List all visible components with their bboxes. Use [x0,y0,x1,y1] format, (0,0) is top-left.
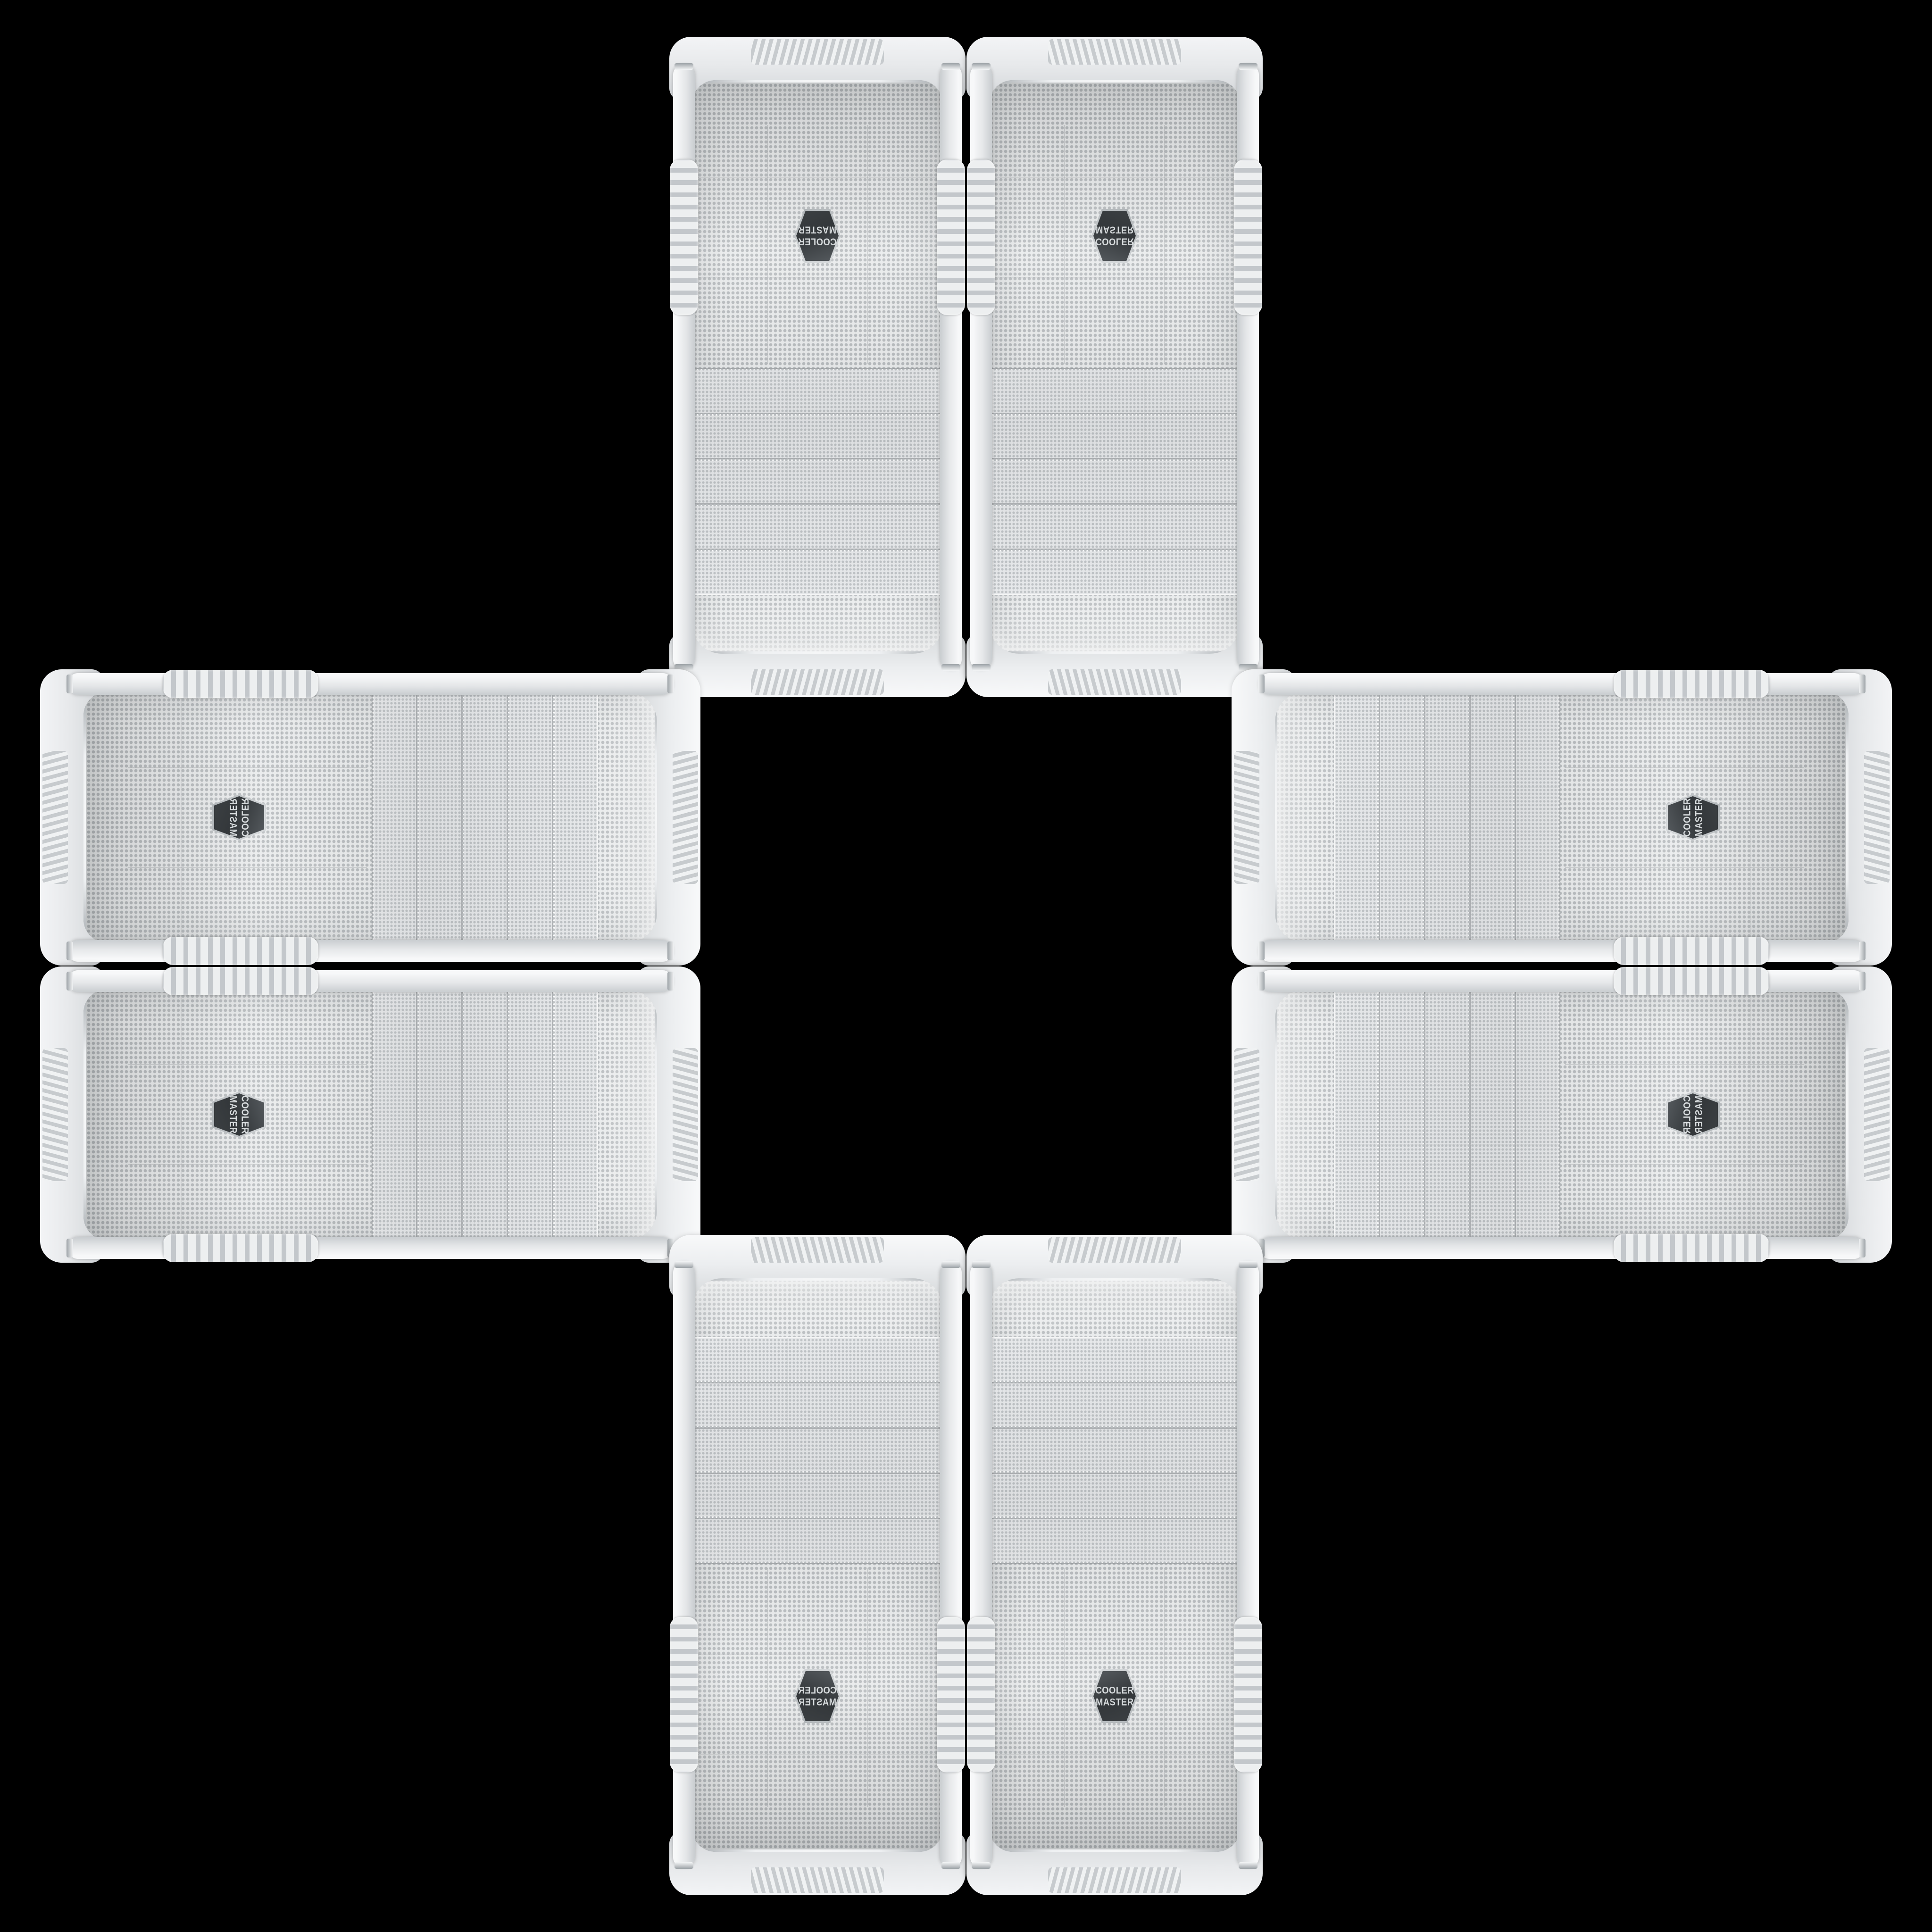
badge-brand-line1: COOLER [1682,1095,1693,1133]
drive-bay-strips [372,989,598,1240]
badge-brand-line2: MASTER [1693,799,1705,836]
chrome-trim [991,80,1238,83]
chrome-trim [83,991,86,1238]
badge-brand-line2: MASTER [799,1697,836,1708]
pc-case-top-left: COOLER MASTER [676,37,959,697]
drive-bay-strips [372,692,598,943]
side-rail [68,673,672,695]
foot-grip-ribs [751,39,884,65]
side-rail [673,1263,695,1867]
rail-grip-ribs [937,159,965,315]
cap-grip-ribs [751,1237,884,1263]
badge-brand-line1: COOLER [798,1685,836,1696]
pc-case-right-bottom: COOLER MASTER [1232,973,1892,1256]
chrome-trim [83,694,86,941]
badge-brand-line1: COOLER [1095,236,1133,248]
side-rail [940,65,962,669]
badge-brand-line1: COOLER [240,798,251,836]
badge-brand-line2: MASTER [1096,225,1133,236]
drive-bay-strips [1334,692,1560,943]
case-montage-scene: COOLER MASTER COOLER MASTER [0,0,1932,1932]
cap-grip-ribs [1234,751,1259,884]
foot-grip-ribs [42,1048,68,1181]
front-mesh-panel: COOLER MASTER [1275,692,1849,943]
drive-bay-strips [989,1337,1240,1564]
pc-case-top-right: COOLER MASTER [973,37,1256,697]
pc-case-right-top: COOLER MASTER [1232,676,1892,959]
badge-brand-line2: MASTER [228,1096,239,1133]
badge-brand-line1: COOLER [1682,798,1693,836]
chrome-trim [694,1278,941,1281]
foot-grip-ribs [1048,1867,1181,1893]
front-mesh-panel: COOLER MASTER [692,80,943,654]
chrome-trim [694,1849,941,1852]
drive-bay-strips [1334,989,1560,1240]
rail-grip-ribs [670,159,698,315]
front-mesh-panel: COOLER MASTER [989,80,1240,654]
side-rail [1260,673,1864,695]
chrome-trim [991,651,1238,654]
cap-grip-ribs [751,669,884,695]
drive-bay-strips [692,368,943,595]
front-mesh-panel: COOLER MASTER [1275,989,1849,1240]
chrome-trim [694,651,941,654]
badge-brand-line2: MASTER [228,799,239,836]
rail-grip-ribs [967,1617,995,1773]
rail-grip-ribs [163,1234,318,1262]
badge-brand-line1: COOLER [240,1095,251,1133]
cap-grip-ribs [1234,1048,1259,1181]
chrome-trim [991,1278,1238,1281]
chrome-trim [655,991,657,1238]
rail-grip-ribs [163,670,318,698]
drive-bay-strips [692,1337,943,1564]
drive-bay-strips [989,368,1240,595]
side-rail [970,1263,992,1867]
side-rail [1260,940,1864,962]
chrome-trim [694,80,941,83]
chrome-trim [655,694,657,941]
chrome-trim [1275,991,1277,1238]
rail-grip-ribs [1614,967,1769,995]
side-rail [1260,970,1864,992]
front-mesh-panel: COOLER MASTER [692,1278,943,1852]
pc-case-bottom-right: COOLER MASTER [973,1235,1256,1895]
rail-grip-ribs [937,1617,965,1773]
badge-brand-line2: MASTER [799,225,836,236]
side-rail [1237,65,1259,669]
pc-case-left-top: COOLER MASTER [40,676,700,959]
rail-grip-ribs [1614,1234,1769,1262]
rail-grip-ribs [163,937,318,965]
rail-grip-ribs [1614,670,1769,698]
side-rail [940,1263,962,1867]
cap-grip-ribs [1048,669,1181,695]
cap-grip-ribs [673,751,698,884]
side-rail [68,970,672,992]
side-rail [673,65,695,669]
side-rail [68,1237,672,1259]
foot-grip-ribs [1048,39,1181,65]
chrome-trim [1275,694,1277,941]
pc-case-left-bottom: COOLER MASTER [40,973,700,1256]
chrome-trim [1846,991,1849,1238]
cap-grip-ribs [673,1048,698,1181]
side-rail [1237,1263,1259,1867]
badge-brand-line1: COOLER [798,236,836,248]
front-mesh-panel: COOLER MASTER [989,1278,1240,1852]
rail-grip-ribs [1614,937,1769,965]
foot-grip-ribs [42,751,68,884]
chrome-trim [991,1849,1238,1852]
chrome-trim [1846,694,1849,941]
side-rail [1260,1237,1864,1259]
rail-grip-ribs [163,967,318,995]
front-mesh-panel: COOLER MASTER [83,692,657,943]
foot-grip-ribs [751,1867,884,1893]
front-mesh-panel: COOLER MASTER [83,989,657,1240]
rail-grip-ribs [1234,159,1262,315]
badge-brand-line2: MASTER [1693,1096,1705,1133]
side-rail [68,940,672,962]
pc-case-bottom-left: COOLER MASTER [676,1235,959,1895]
foot-grip-ribs [1864,751,1890,884]
rail-grip-ribs [1234,1617,1262,1773]
foot-grip-ribs [1864,1048,1890,1181]
rail-grip-ribs [967,159,995,315]
badge-brand-line1: COOLER [1095,1685,1133,1696]
badge-brand-line2: MASTER [1096,1697,1133,1708]
side-rail [970,65,992,669]
cap-grip-ribs [1048,1237,1181,1263]
rail-grip-ribs [670,1617,698,1773]
